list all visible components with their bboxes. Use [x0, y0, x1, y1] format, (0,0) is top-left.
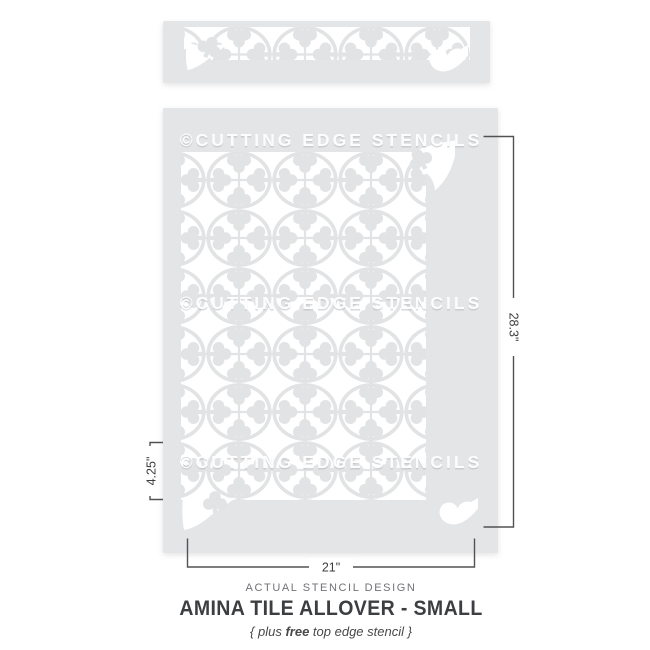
stencil-product-image: ©CUTTING EDGE STENCILS ©CUTTING EDGE STE…: [0, 0, 650, 650]
subtitle-prefix: { plus: [250, 624, 285, 639]
svg-text:©CUTTING EDGE STENCILS: ©CUTTING EDGE STENCILS: [180, 130, 483, 150]
subtitle-suffix: top edge stencil }: [309, 624, 412, 639]
height-dimension-label: 28.3": [507, 313, 521, 342]
repeat-dimension: 4.25": [141, 443, 163, 500]
repeat-dimension-label: 4.25": [145, 457, 159, 486]
top-edge-stencil-sheet: [163, 21, 490, 83]
width-dimension-label: 21": [322, 561, 340, 575]
caption-kicker: ACTUAL STENCIL DESIGN: [6, 582, 650, 594]
svg-text:©CUTTING EDGE STENCILS: ©CUTTING EDGE STENCILS: [180, 452, 483, 472]
tile-pattern-area: [181, 152, 426, 500]
subtitle-free-word: free: [285, 624, 309, 639]
product-title: AMINA TILE ALLOVER - SMALL: [29, 597, 634, 621]
caption-block: ACTUAL STENCIL DESIGN AMINA TILE ALLOVER…: [6, 582, 650, 639]
main-stencil-sheet: ©CUTTING EDGE STENCILS ©CUTTING EDGE STE…: [163, 108, 498, 553]
caption-subtitle: { plus free top edge stencil }: [6, 624, 650, 639]
svg-text:©CUTTING EDGE STENCILS: ©CUTTING EDGE STENCILS: [180, 293, 483, 313]
